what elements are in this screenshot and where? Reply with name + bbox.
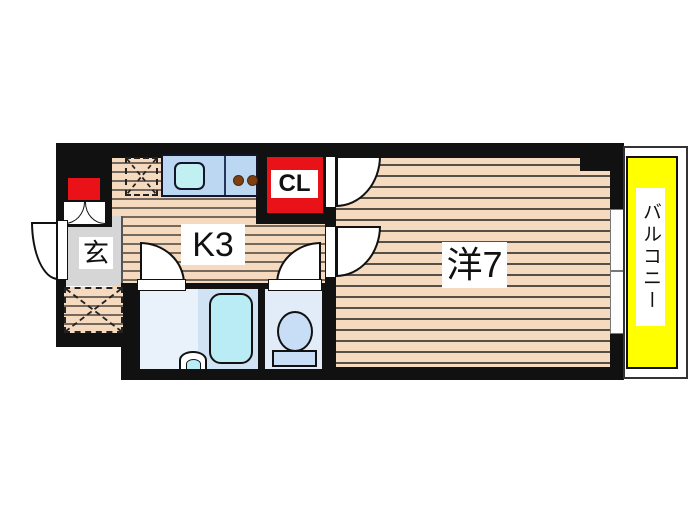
stove-burner-icon <box>247 175 258 186</box>
sliding-window-icon <box>610 209 624 334</box>
western-room-label-text: 洋7 <box>446 247 502 283</box>
hatched-storage-bottom-icon <box>64 287 123 333</box>
wash-basin-inner <box>186 359 201 369</box>
closet-box: CL <box>265 155 325 215</box>
balcony-label-text: バルコニー <box>641 202 660 312</box>
entrance-label-text: 玄 <box>83 240 109 266</box>
entrance-label: 玄 <box>79 237 113 269</box>
hatched-storage-top-icon <box>125 157 158 196</box>
entrance-door-arc <box>31 222 58 280</box>
counter-divider <box>224 156 226 195</box>
shoe-cabinet-door-arc <box>85 202 106 224</box>
closet-label: CL <box>271 170 318 198</box>
balcony-label: バルコニー <box>636 188 665 326</box>
floor-plan: CL バルコニー 玄 K3 洋7 <box>0 0 700 525</box>
stove-burner-icon <box>233 175 244 186</box>
room-door-leaf <box>325 226 336 278</box>
kitchen-label-text: K3 <box>192 228 234 262</box>
western-room-label: 洋7 <box>442 242 507 288</box>
closet-door-leaf <box>325 156 336 208</box>
wall-bottom-left <box>56 331 123 347</box>
toilet-bowl-icon <box>277 311 313 352</box>
bath-door-leaf <box>137 279 186 291</box>
toilet-door-leaf <box>268 279 322 291</box>
entrance-red-box <box>66 176 102 202</box>
wall-notch <box>580 156 612 171</box>
shoe-cabinet-icon <box>62 200 107 226</box>
window-divider <box>611 270 623 272</box>
closet-label-text: CL <box>279 172 311 196</box>
bathtub-icon <box>209 293 253 364</box>
kitchen-label: K3 <box>181 224 245 265</box>
kitchen-counter <box>161 154 258 197</box>
toilet-tank-icon <box>272 350 317 367</box>
entrance-door-leaf <box>57 220 68 280</box>
kitchen-sink-icon <box>174 162 205 190</box>
